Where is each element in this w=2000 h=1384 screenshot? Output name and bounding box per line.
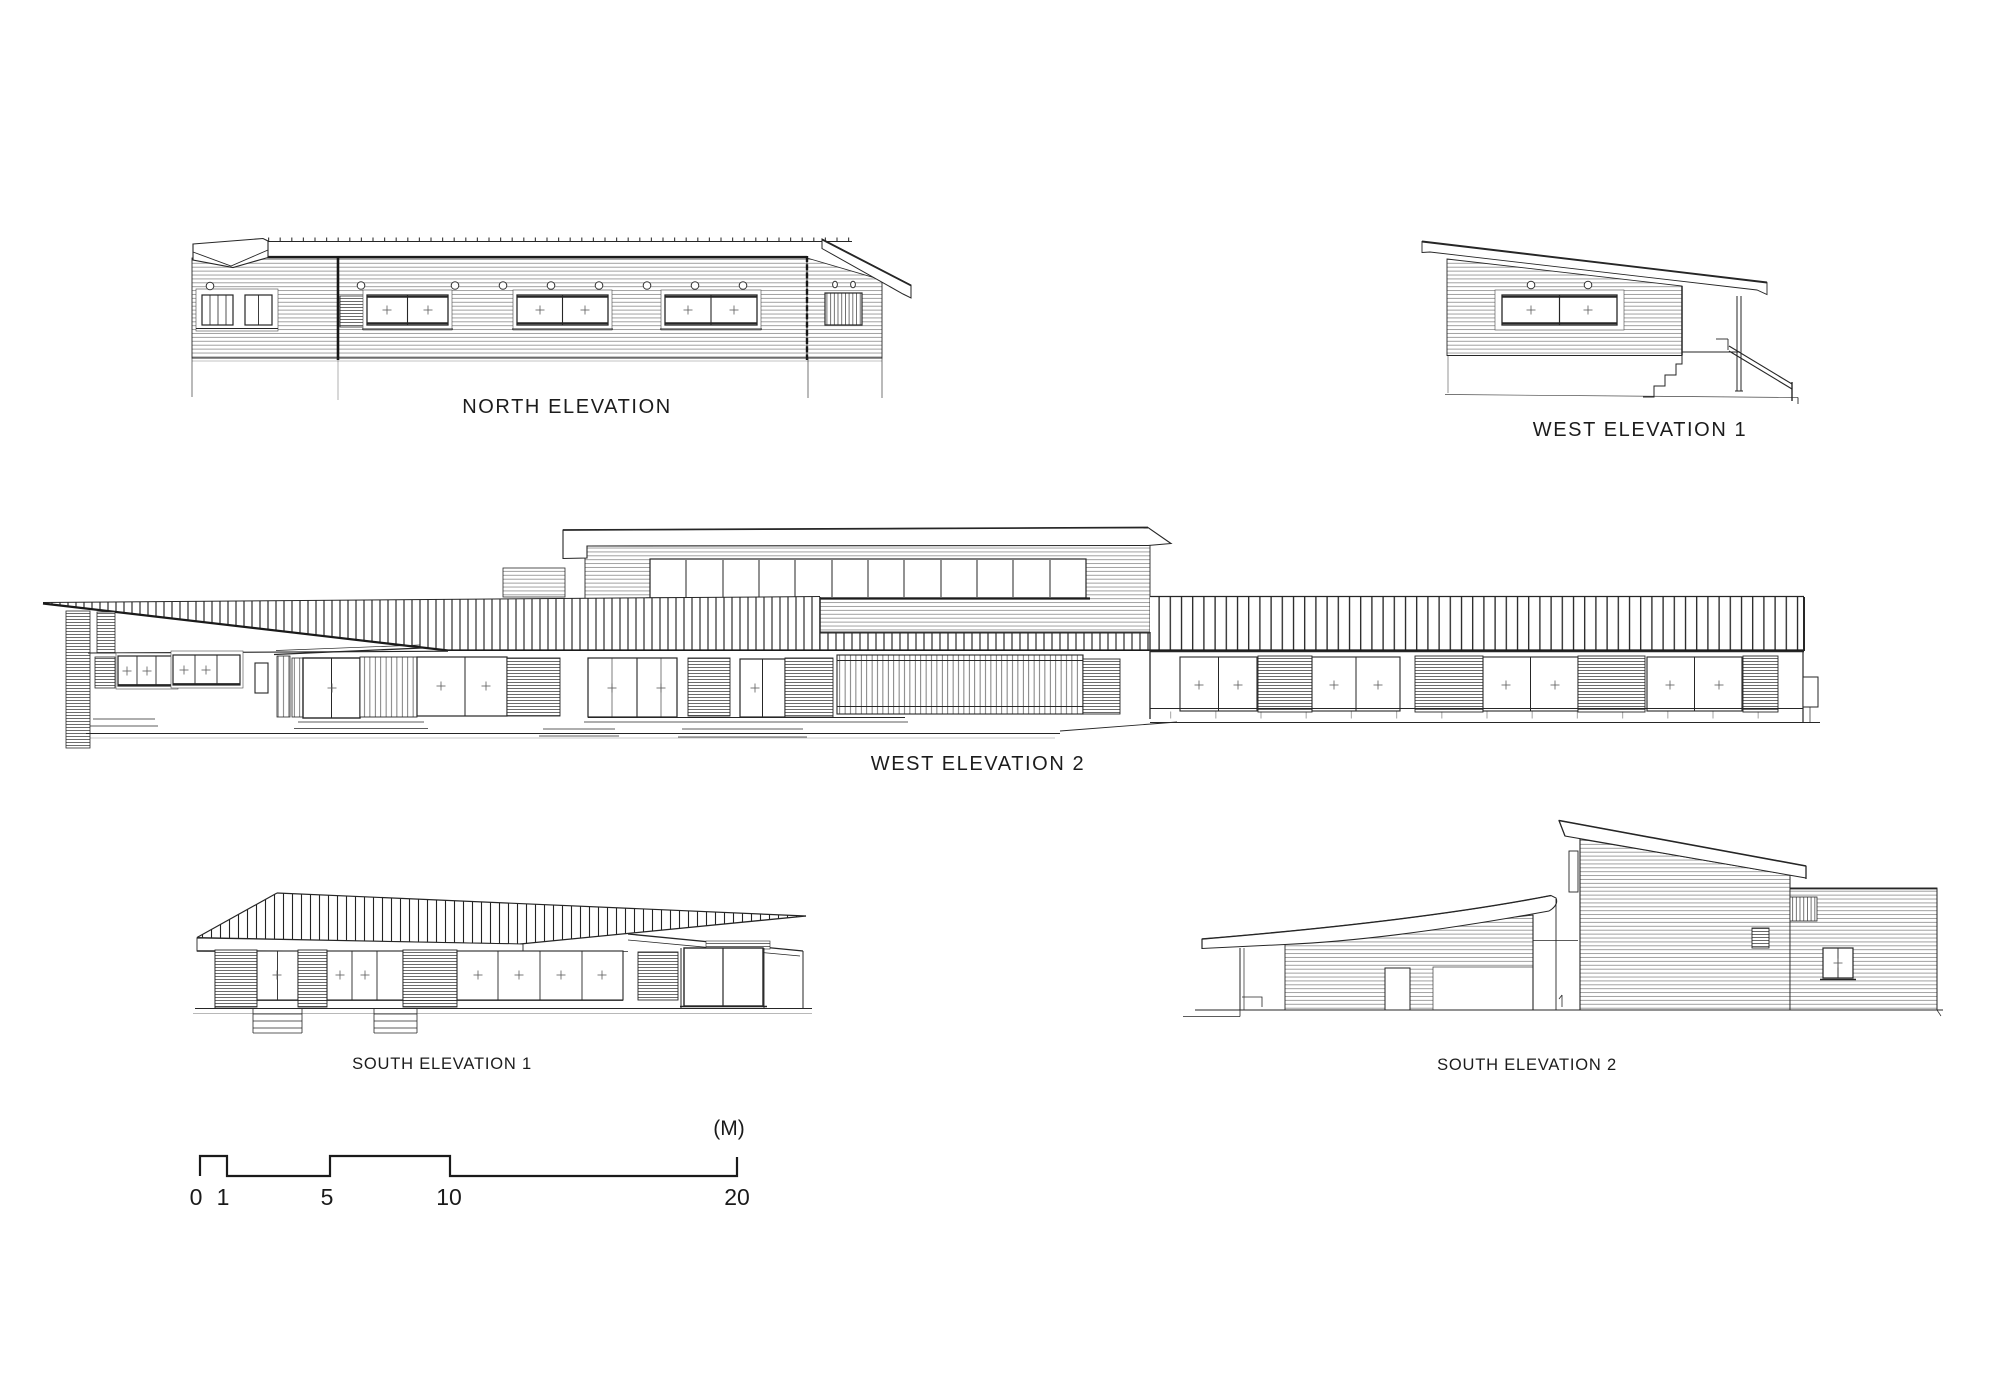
west-elevation-2-drawing: [43, 528, 1820, 749]
drawing-canvas: [0, 0, 2000, 1384]
drawing-sheet: NORTH ELEVATION WEST ELEVATION 1 WEST EL…: [0, 0, 2000, 1384]
scale-bar: [200, 1156, 737, 1176]
north-elevation-label: NORTH ELEVATION: [462, 396, 672, 419]
scale-tick-5: 5: [321, 1184, 334, 1211]
south-elevation-1-label: SOUTH ELEVATION 1: [352, 1055, 532, 1074]
south-elevation-2-drawing: [1183, 821, 1943, 1017]
west-elevation-1-label: WEST ELEVATION 1: [1533, 419, 1748, 442]
south-elevation-1-drawing: [193, 893, 813, 1033]
north-elevation-drawing: [192, 239, 911, 401]
south-elevation-2-label: SOUTH ELEVATION 2: [1437, 1056, 1617, 1075]
west-elevation-2-label: WEST ELEVATION 2: [871, 753, 1086, 776]
scale-tick-0: 0: [190, 1184, 203, 1211]
scale-tick-1: 1: [217, 1184, 230, 1211]
west-elevation-1-drawing: [1422, 242, 1798, 405]
scale-tick-20: 20: [724, 1184, 750, 1211]
scale-tick-10: 10: [436, 1184, 462, 1211]
scale-unit-label: (M): [713, 1117, 744, 1141]
